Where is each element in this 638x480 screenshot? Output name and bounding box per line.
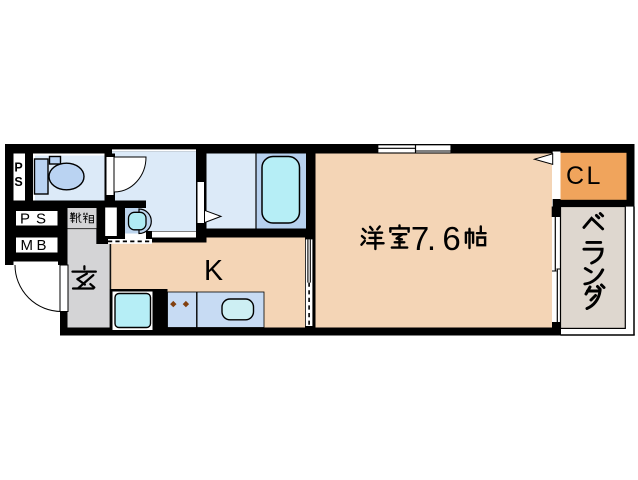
svg-text:S: S xyxy=(36,211,46,228)
svg-text:C: C xyxy=(566,162,584,190)
svg-text:M: M xyxy=(21,237,34,254)
svg-text:.: . xyxy=(427,220,436,257)
svg-text:L: L xyxy=(587,162,601,190)
svg-text:B: B xyxy=(37,237,47,254)
svg-text:K: K xyxy=(204,255,223,287)
svg-text:6: 6 xyxy=(442,220,460,257)
svg-text:P: P xyxy=(14,161,22,175)
svg-text:P: P xyxy=(20,211,30,228)
svg-text:S: S xyxy=(14,175,22,189)
